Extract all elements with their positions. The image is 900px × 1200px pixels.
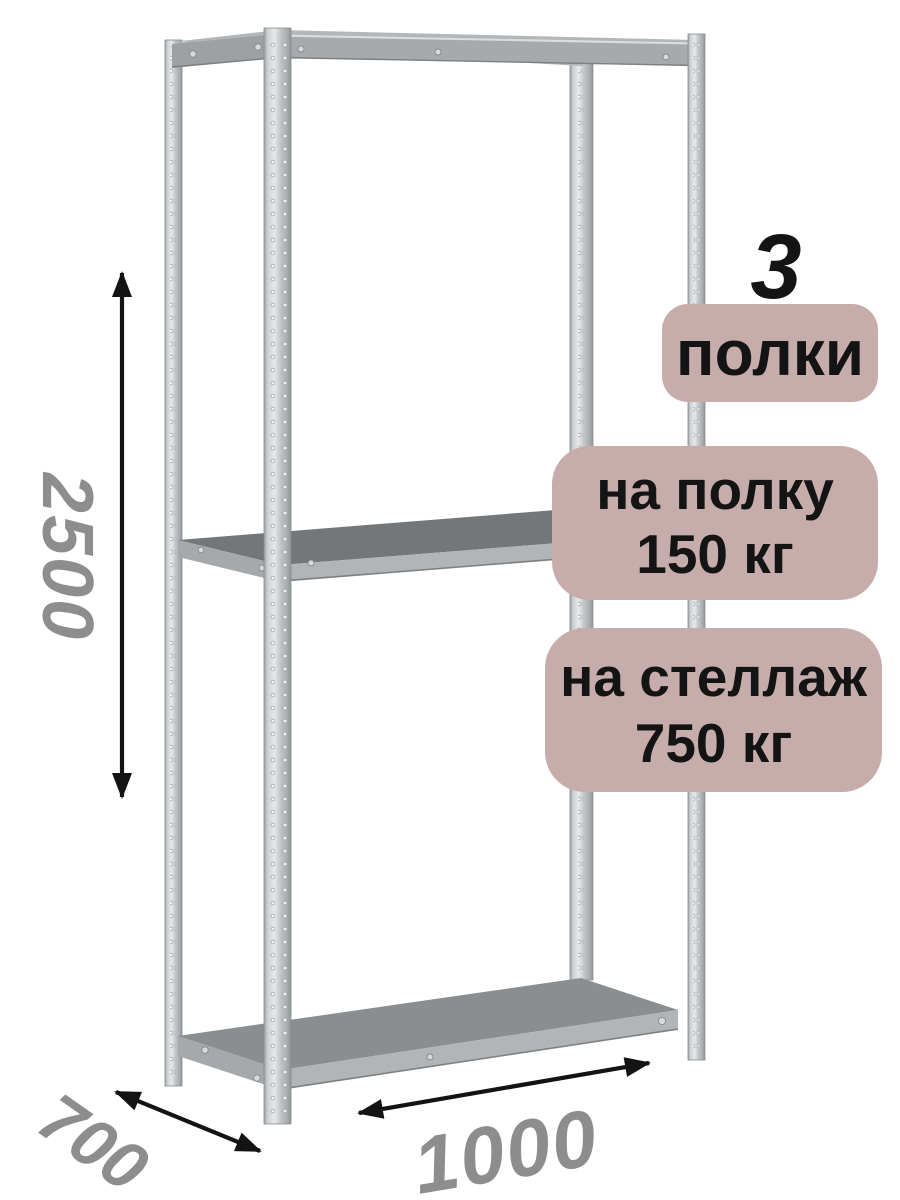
shelf-count-badge-label: полки xyxy=(676,316,864,390)
top-shelf xyxy=(172,30,696,68)
rack-post-back-left xyxy=(165,40,182,1086)
height-dimension-label: 2500 xyxy=(31,473,103,641)
shelf-count-number: 3 xyxy=(750,221,801,313)
per-rack-load-line1: на стеллаж xyxy=(560,644,867,710)
bottom-shelf xyxy=(178,978,678,1090)
shelf-count-badge: полки xyxy=(662,304,878,402)
per-shelf-load-badge: на полку 150 кг xyxy=(552,446,878,600)
per-shelf-load-line1: на полку xyxy=(596,459,834,523)
per-rack-load-badge: на стеллаж 750 кг xyxy=(545,628,882,792)
per-shelf-load-line2: 150 кг xyxy=(636,523,793,587)
rack-post-front-left xyxy=(264,28,291,1124)
product-image: 2500 700 1000 3 полки на полку 150 кг на… xyxy=(0,0,900,1200)
shelving-rack-drawing xyxy=(0,0,900,1200)
per-rack-load-line2: 750 кг xyxy=(635,710,792,776)
